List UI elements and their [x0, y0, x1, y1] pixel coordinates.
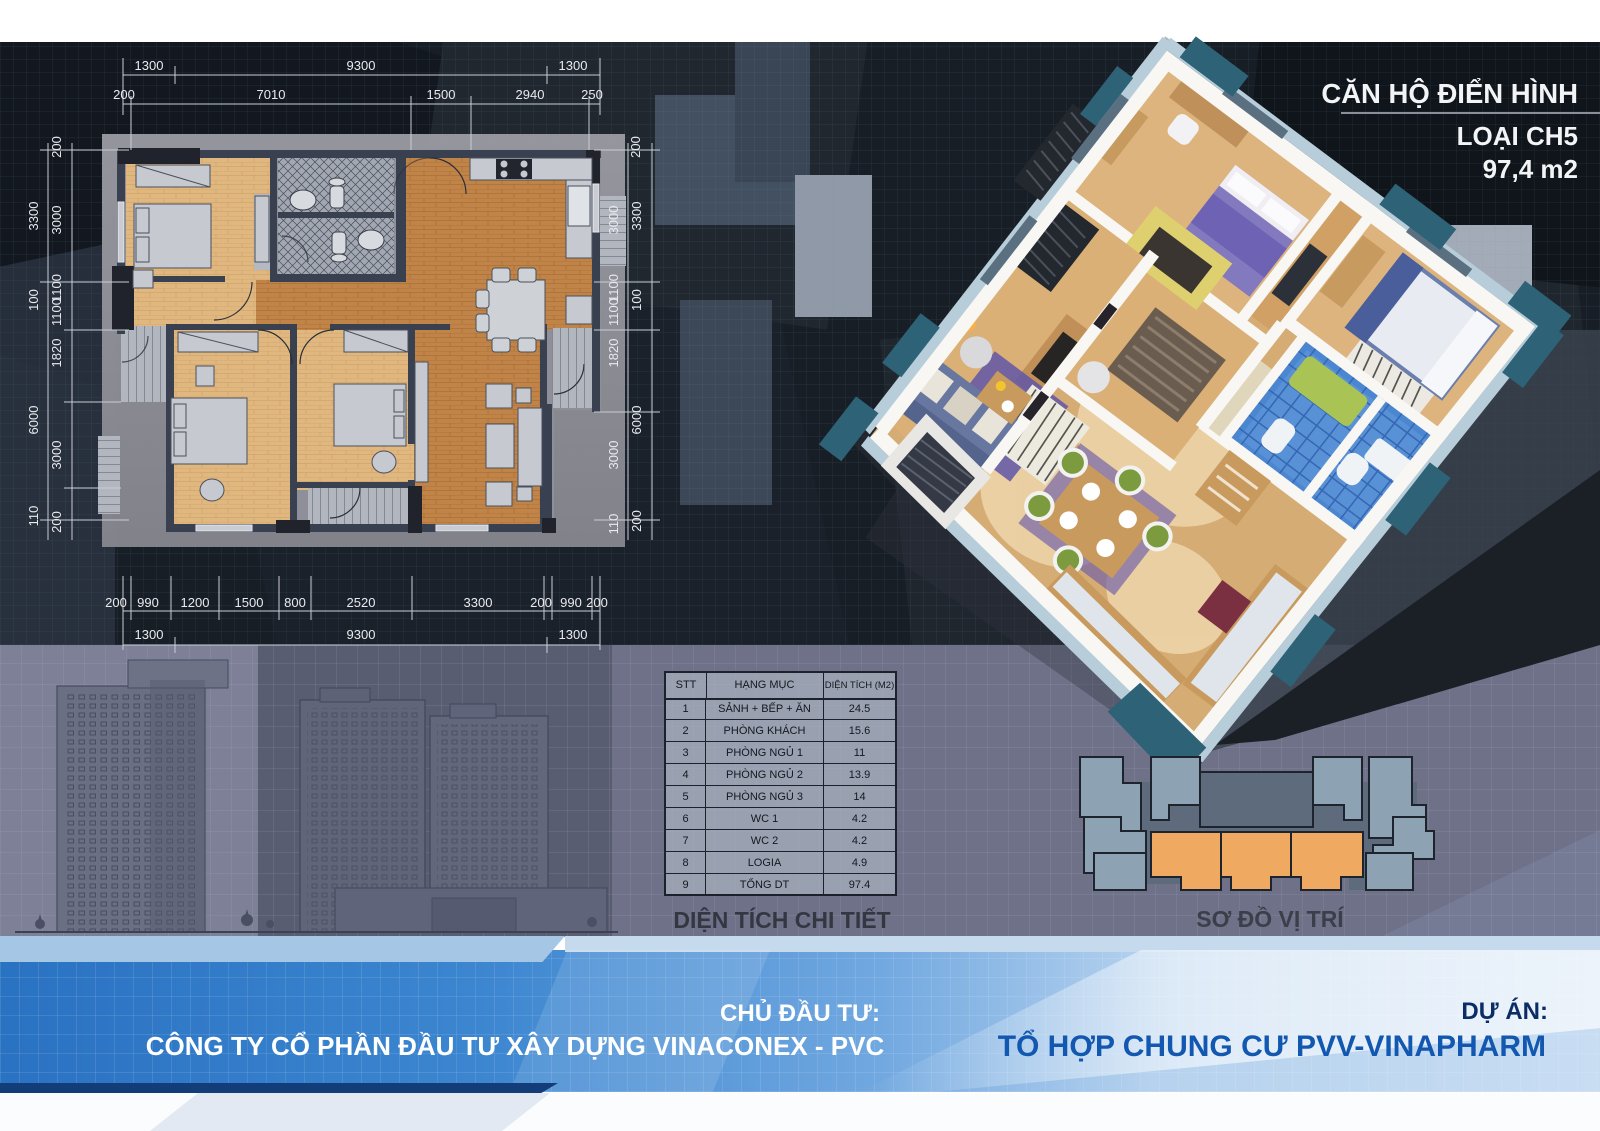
svg-text:100: 100: [629, 289, 644, 311]
svg-text:6000: 6000: [629, 406, 644, 435]
svg-text:1100: 1100: [606, 298, 621, 326]
svg-text:200: 200: [628, 136, 643, 158]
svg-text:9300: 9300: [347, 627, 376, 642]
svg-text:1820: 1820: [606, 339, 621, 368]
svg-text:200: 200: [586, 595, 608, 610]
svg-text:200: 200: [105, 595, 127, 610]
svg-text:200: 200: [629, 510, 644, 532]
svg-text:3000: 3000: [49, 206, 64, 235]
svg-text:200: 200: [113, 87, 135, 102]
svg-text:3300: 3300: [464, 595, 493, 610]
svg-text:1300: 1300: [135, 627, 164, 642]
svg-text:1300: 1300: [135, 58, 164, 73]
svg-text:1100: 1100: [49, 298, 64, 326]
svg-text:1100: 1100: [49, 274, 64, 302]
svg-text:6000: 6000: [26, 406, 41, 435]
svg-text:990: 990: [560, 595, 582, 610]
svg-text:110: 110: [26, 506, 41, 527]
svg-text:1300: 1300: [559, 627, 588, 642]
svg-text:200: 200: [49, 511, 64, 533]
svg-text:250: 250: [581, 87, 603, 102]
svg-text:800: 800: [284, 595, 306, 610]
svg-text:1500: 1500: [235, 595, 264, 610]
svg-text:200: 200: [530, 595, 552, 610]
svg-text:2520: 2520: [347, 595, 376, 610]
svg-text:1200: 1200: [181, 595, 210, 610]
svg-text:110: 110: [606, 514, 621, 535]
svg-text:100: 100: [26, 289, 41, 311]
svg-text:1820: 1820: [49, 339, 64, 368]
svg-text:3300: 3300: [629, 202, 644, 231]
svg-text:200: 200: [49, 136, 64, 158]
svg-text:2940: 2940: [516, 87, 545, 102]
svg-text:1500: 1500: [427, 87, 456, 102]
svg-text:9300: 9300: [347, 58, 376, 73]
svg-text:1100: 1100: [606, 274, 621, 302]
svg-text:7010: 7010: [257, 87, 286, 102]
svg-text:990: 990: [137, 595, 159, 610]
svg-text:3000: 3000: [606, 441, 621, 470]
svg-text:3000: 3000: [606, 206, 621, 235]
svg-text:3000: 3000: [49, 441, 64, 470]
svg-text:3300: 3300: [26, 202, 41, 231]
svg-text:1300: 1300: [559, 58, 588, 73]
